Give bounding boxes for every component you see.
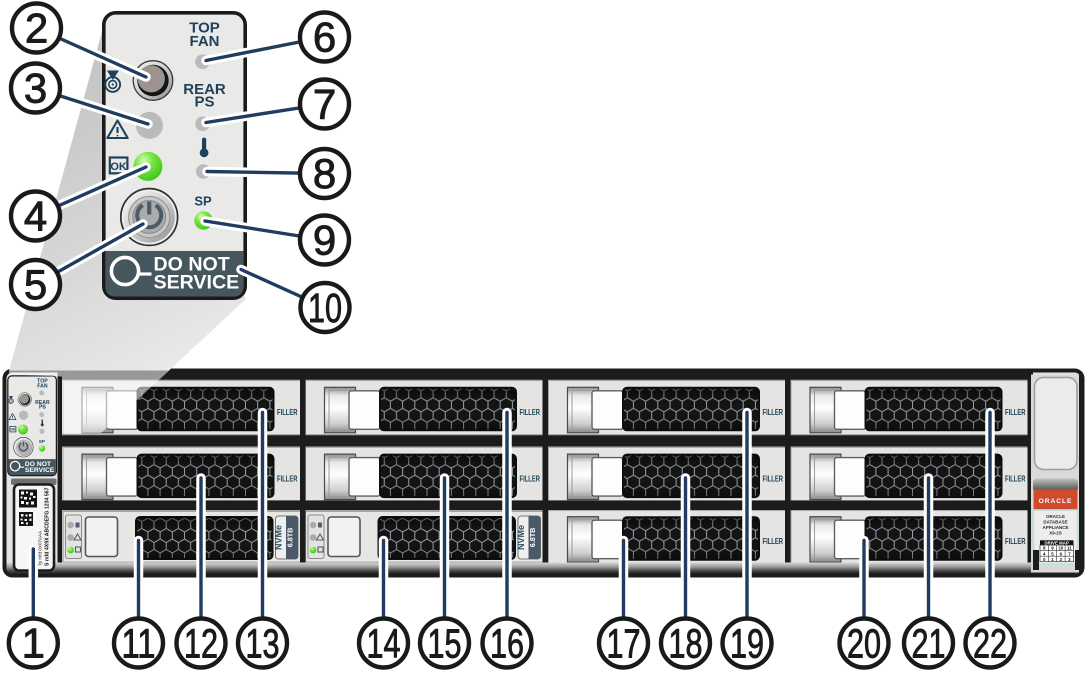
svg-text:21: 21 <box>912 621 946 667</box>
svg-text:18: 18 <box>669 621 703 667</box>
svg-text:16: 16 <box>490 621 524 667</box>
svg-text:ORACLE: ORACLE <box>1046 514 1065 519</box>
svg-text:2: 2 <box>25 5 48 52</box>
svg-text:15: 15 <box>428 621 462 667</box>
svg-text:S mfd 4X9X ABCDEFG 1234 567: S mfd 4X9X ABCDEFG 1234 567 <box>45 487 51 566</box>
svg-text:10: 10 <box>1058 546 1063 551</box>
svg-text:ORACLE: ORACLE <box>1039 498 1073 505</box>
svg-text:17: 17 <box>607 621 641 667</box>
svg-text:7: 7 <box>313 81 336 128</box>
svg-text:APPLIANCE: APPLIANCE <box>1042 525 1068 530</box>
svg-text:10: 10 <box>308 285 342 331</box>
svg-text:5: 5 <box>24 261 47 308</box>
svg-text:12: 12 <box>184 621 218 667</box>
svg-text:11: 11 <box>1067 546 1072 551</box>
svg-text:13: 13 <box>246 621 280 667</box>
svg-text:19: 19 <box>730 621 764 667</box>
svg-text:11: 11 <box>122 621 156 667</box>
svg-text:14: 14 <box>367 621 401 667</box>
svg-text:22: 22 <box>973 621 1007 667</box>
svg-text:7p mfd 0X07AAA: 7p mfd 0X07AAA <box>38 530 43 566</box>
svg-text:1: 1 <box>22 620 45 667</box>
svg-text:6: 6 <box>313 14 336 61</box>
svg-text:4: 4 <box>24 193 47 240</box>
svg-text:DATABASE: DATABASE <box>1043 520 1067 525</box>
svg-text:DRIVE MAP: DRIVE MAP <box>1044 540 1068 545</box>
svg-text:8: 8 <box>313 150 336 197</box>
svg-text:9: 9 <box>313 217 336 264</box>
svg-text:3: 3 <box>24 65 47 112</box>
svg-text:20: 20 <box>847 621 881 667</box>
svg-text:X9-2S: X9-2S <box>1049 531 1062 536</box>
